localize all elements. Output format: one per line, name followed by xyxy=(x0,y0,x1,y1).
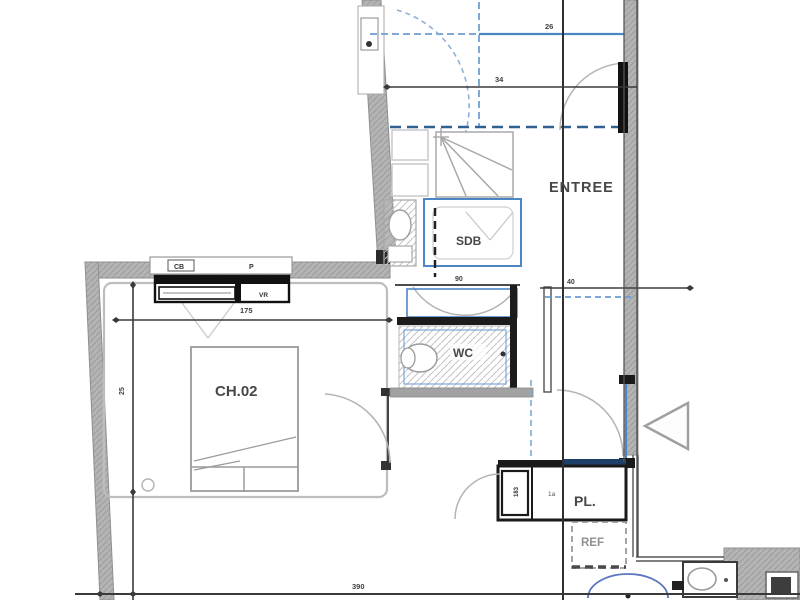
dim-pl-side: 183 xyxy=(514,486,520,497)
wc-zone xyxy=(390,285,551,397)
dim-bedroom-depth: 25 xyxy=(119,387,126,395)
room-label-sdb: SDB xyxy=(456,234,482,248)
dim-top-upper: 26 xyxy=(545,22,553,31)
room-label-ch02: CH.02 xyxy=(215,383,258,400)
door-stop xyxy=(142,479,154,491)
room-label-ref: REF xyxy=(581,537,604,549)
door-jamb-bar xyxy=(618,62,628,133)
dim-wc-width: 90 xyxy=(455,276,463,283)
kitchen-sink xyxy=(672,562,737,597)
window-label-p: P xyxy=(249,264,254,271)
entrance-hall xyxy=(531,288,690,468)
window-label-cb: CB xyxy=(174,264,184,271)
room-label-wc: WC xyxy=(453,346,473,360)
bed xyxy=(191,347,298,491)
room-label-entree: ENTREE xyxy=(549,180,614,196)
bedroom-window xyxy=(150,257,292,302)
pl-cabinet xyxy=(455,459,626,520)
entrance-arrow-icon xyxy=(645,403,688,449)
dim-hall: 40 xyxy=(567,279,575,286)
washbasin xyxy=(384,200,416,266)
dim-window-width: 175 xyxy=(240,306,253,315)
bedroom-door xyxy=(325,388,391,470)
room-label-pl: PL. xyxy=(574,493,596,509)
window-label-vr: VR xyxy=(259,292,268,299)
entry-cabinets xyxy=(392,130,428,196)
floorplan-canvas: ENTREE SDB WC CH.02 PL. REF CB P VR 26 3… xyxy=(0,0,800,600)
thin-wall-lines xyxy=(633,455,724,561)
shower xyxy=(433,128,513,197)
dim-bottom-width: 390 xyxy=(352,582,365,591)
dim-pl-tick: 1a xyxy=(548,491,556,498)
floorplan-drawing: ENTREE SDB WC CH.02 PL. REF CB P VR 26 3… xyxy=(0,0,800,600)
dim-top-lower: 34 xyxy=(495,75,504,84)
upper-window xyxy=(358,6,384,94)
